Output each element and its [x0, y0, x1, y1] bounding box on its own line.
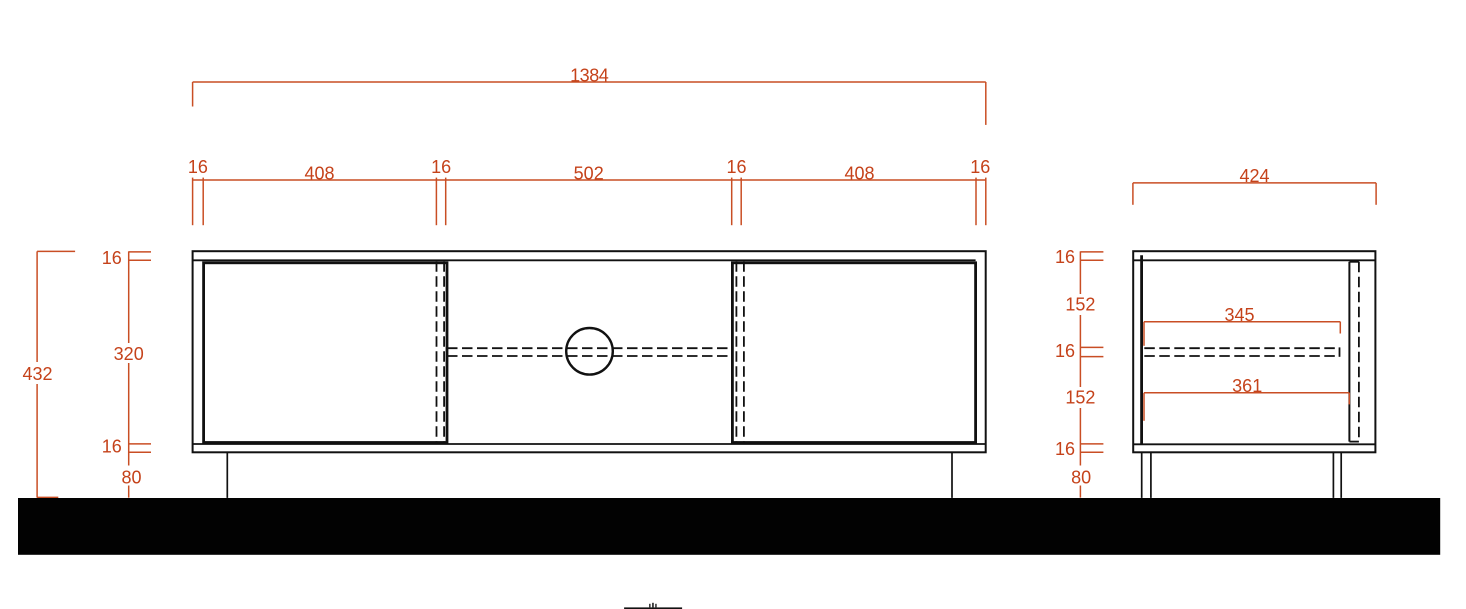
svg-text:80: 80 — [121, 467, 141, 487]
svg-text:424: 424 — [1239, 166, 1269, 186]
svg-text:16: 16 — [102, 436, 122, 456]
svg-text:16: 16 — [102, 248, 122, 268]
svg-text:16: 16 — [188, 157, 208, 177]
svg-text:345: 345 — [1224, 305, 1254, 325]
svg-text:502: 502 — [574, 163, 604, 183]
svg-text:16: 16 — [1055, 341, 1075, 361]
svg-text:361: 361 — [1232, 376, 1262, 396]
svg-text:408: 408 — [304, 163, 334, 183]
svg-text:408: 408 — [844, 163, 874, 183]
svg-text:16: 16 — [726, 157, 746, 177]
svg-text:16: 16 — [970, 157, 990, 177]
svg-text:152: 152 — [1065, 388, 1095, 408]
svg-text:16: 16 — [431, 157, 451, 177]
svg-text:320: 320 — [114, 344, 144, 364]
svg-text:1384: 1384 — [570, 66, 609, 86]
svg-text:16: 16 — [1055, 439, 1075, 459]
svg-text:432: 432 — [22, 364, 52, 384]
svg-text:152: 152 — [1065, 295, 1095, 315]
svg-text:80: 80 — [1071, 467, 1091, 487]
svg-text:16: 16 — [1055, 247, 1075, 267]
